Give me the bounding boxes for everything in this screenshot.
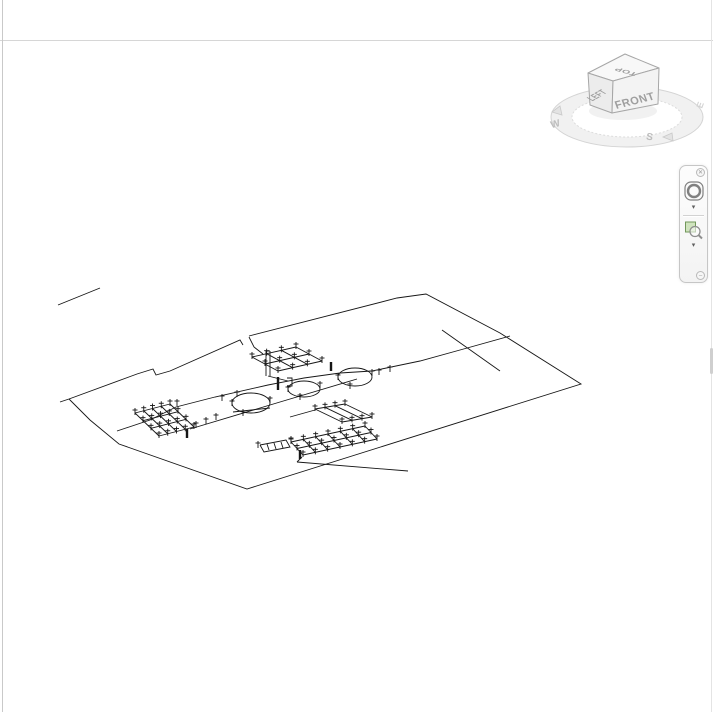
steering-wheel-icon — [683, 180, 705, 202]
revit-drawing-area: W S E TOP LEFT FRONT ✕ ▾ — [0, 0, 713, 712]
steering-wheel-dropdown-arrow[interactable]: ▾ — [692, 204, 696, 211]
viewcube[interactable]: TOP LEFT FRONT — [584, 54, 659, 120]
close-icon: ✕ — [698, 170, 703, 176]
site-plan-wireframe[interactable] — [58, 288, 581, 489]
navbar-options-button[interactable]: – — [696, 271, 705, 280]
zoom-icon — [684, 220, 704, 240]
navigation-bar: ✕ ▾ ▾ – — [679, 165, 708, 283]
3d-view-canvas[interactable]: W S E TOP LEFT FRONT — [0, 0, 713, 712]
steering-wheel-button[interactable] — [683, 180, 705, 202]
navbar-close-button[interactable]: ✕ — [696, 168, 705, 177]
zoom-dropdown-arrow[interactable]: ▾ — [692, 242, 696, 249]
navbar-separator — [683, 215, 704, 217]
minus-icon: – — [699, 273, 702, 279]
zoom-tool-button[interactable] — [684, 220, 704, 240]
